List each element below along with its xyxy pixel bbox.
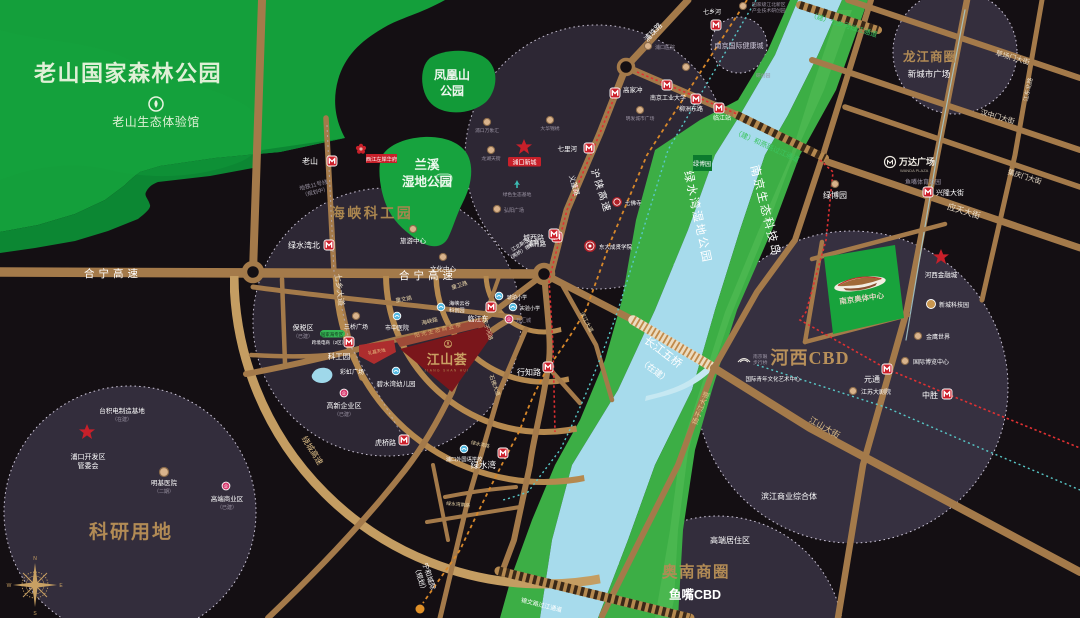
svg-text:临江站: 临江站 (713, 114, 731, 122)
svg-text:彩虹广场: 彩虹广场 (340, 368, 364, 376)
svg-text:万汇城: 万汇城 (516, 317, 531, 324)
svg-text:合宁高速: 合宁高速 (84, 267, 142, 280)
svg-text:高家冲: 高家冲 (623, 85, 643, 94)
svg-text:（已建）: （已建） (217, 504, 237, 511)
svg-text:奥南商圈: 奥南商圈 (662, 562, 730, 581)
svg-text:龙江商圈: 龙江商圈 (902, 49, 957, 64)
svg-text:万达广场: 万达广场 (898, 156, 935, 167)
svg-text:W: W (7, 583, 12, 589)
svg-text:（在建）: （在建） (112, 416, 132, 423)
svg-text:海峡云谷: 海峡云谷 (449, 299, 471, 307)
svg-text:国家级江北新区: 国家级江北新区 (752, 1, 786, 8)
svg-text:国际青年文化艺术中心: 国际青年文化艺术中心 (745, 375, 801, 383)
svg-text:步行桥: 步行桥 (753, 359, 768, 366)
svg-text:金鹰世界: 金鹰世界 (926, 333, 950, 341)
svg-text:明发城市广场: 明发城市广场 (626, 115, 655, 122)
svg-text:N: N (33, 556, 37, 562)
svg-text:科研用地: 科研用地 (89, 520, 173, 543)
svg-text:老山国家森林公园: 老山国家森林公园 (33, 61, 222, 86)
svg-text:西江左岸华府: 西江左岸华府 (366, 155, 397, 163)
svg-text:元通: 元通 (864, 374, 880, 384)
svg-text:高端居住区: 高端居住区 (710, 535, 750, 545)
svg-text:行知路: 行知路 (517, 367, 541, 377)
svg-text:碧水湾幼儿园: 碧水湾幼儿园 (377, 379, 416, 388)
svg-text:高新企业区: 高新企业区 (327, 401, 362, 410)
svg-text:兴隆大街: 兴隆大街 (936, 188, 964, 197)
svg-text:国际博览中心: 国际博览中心 (913, 358, 949, 366)
svg-text:大华锦绣: 大华锦绣 (540, 125, 559, 132)
svg-text:实验小学: 实验小学 (520, 305, 540, 312)
svg-text:JIANG SHAN HUI: JIANG SHAN HUI (424, 369, 469, 373)
svg-text:（已建）: （已建） (334, 411, 354, 418)
svg-text:南京国际健康城: 南京国际健康城 (715, 41, 764, 50)
svg-text:江苏大剧院: 江苏大剧院 (861, 388, 891, 396)
svg-text:鱼嘴体育公园: 鱼嘴体育公园 (905, 178, 941, 186)
svg-text:凤凰山: 凤凰山 (434, 67, 470, 82)
svg-text:湿地公园: 湿地公园 (402, 174, 452, 189)
svg-text:文化中心: 文化中心 (430, 264, 457, 273)
svg-text:中胜: 中胜 (922, 390, 938, 400)
svg-text:东大成贤学院: 东大成贤学院 (599, 243, 633, 251)
svg-text:南京工业大学: 南京工业大学 (650, 94, 686, 102)
svg-text:新城市广场: 新城市广场 (908, 69, 951, 79)
svg-text:研创园: 研创园 (756, 72, 771, 79)
svg-text:旅游中心: 旅游中心 (400, 236, 427, 245)
svg-text:柳洲东路: 柳洲东路 (679, 105, 703, 113)
svg-text:产业技术研创园: 产业技术研创园 (752, 7, 786, 14)
svg-text:浦口新城: 浦口新城 (512, 159, 536, 167)
svg-text:龙湖天街: 龙湖天街 (481, 155, 500, 162)
svg-text:河西CBD: 河西CBD (770, 348, 849, 368)
svg-text:琥珀小学: 琥珀小学 (507, 294, 527, 301)
svg-text:弘阳广场: 弘阳广场 (504, 207, 524, 214)
svg-text:台积电制造基地: 台积电制造基地 (99, 406, 145, 415)
svg-text:绿色生态基地: 绿色生态基地 (503, 191, 532, 198)
svg-text:科工园: 科工园 (328, 351, 351, 361)
svg-text:高端商业区: 高端商业区 (211, 494, 244, 503)
svg-text:（已建）: （已建） (293, 333, 313, 340)
svg-text:管委会: 管委会 (78, 461, 99, 470)
svg-text:科创园: 科创园 (449, 306, 465, 314)
svg-text:七乡河: 七乡河 (703, 8, 721, 16)
svg-text:明基医院: 明基医院 (151, 478, 178, 487)
svg-text:滨江商业综合体: 滨江商业综合体 (761, 491, 817, 501)
svg-text:海峡科工园: 海峡科工园 (331, 205, 414, 222)
svg-text:绿博园: 绿博园 (823, 190, 847, 200)
svg-text:（二期）: （二期） (154, 489, 174, 495)
svg-text:七里河: 七里河 (558, 144, 578, 153)
svg-text:公园: 公园 (440, 84, 464, 98)
svg-text:新城科技园: 新城科技园 (939, 301, 969, 309)
svg-text:三桥广场: 三桥广场 (344, 323, 368, 331)
svg-text:浦口开发区: 浦口开发区 (71, 452, 106, 461)
svg-text:跨境电商（2区）: 跨境电商（2区） (312, 339, 347, 346)
svg-text:绿水湾北: 绿水湾北 (288, 240, 320, 250)
svg-text:绿博园: 绿博园 (693, 160, 711, 168)
svg-text:兰溪: 兰溪 (414, 157, 440, 172)
svg-text:WANDA PLAZA: WANDA PLAZA (900, 168, 929, 173)
svg-text:七佛寺: 七佛寺 (625, 199, 642, 207)
svg-text:市中医院: 市中医院 (385, 324, 409, 332)
svg-text:江山荟: 江山荟 (427, 352, 468, 367)
svg-text:虎桥路: 虎桥路 (375, 438, 396, 447)
svg-text:河西金融城: 河西金融城 (925, 270, 958, 279)
svg-text:国家海专区: 国家海专区 (321, 331, 344, 338)
svg-text:鱼嘴CBD: 鱼嘴CBD (669, 587, 721, 602)
svg-text:浦口万象汇: 浦口万象汇 (475, 127, 499, 134)
svg-text:保税区: 保税区 (293, 323, 314, 332)
svg-text:浦口外国语学校: 浦口外国语学校 (446, 455, 482, 463)
svg-text:浦口医院: 浦口医院 (655, 44, 675, 51)
svg-text:老山: 老山 (302, 156, 318, 166)
svg-text:南京眼: 南京眼 (753, 353, 768, 360)
svg-text:老山生态体验馆: 老山生态体验馆 (112, 114, 200, 129)
